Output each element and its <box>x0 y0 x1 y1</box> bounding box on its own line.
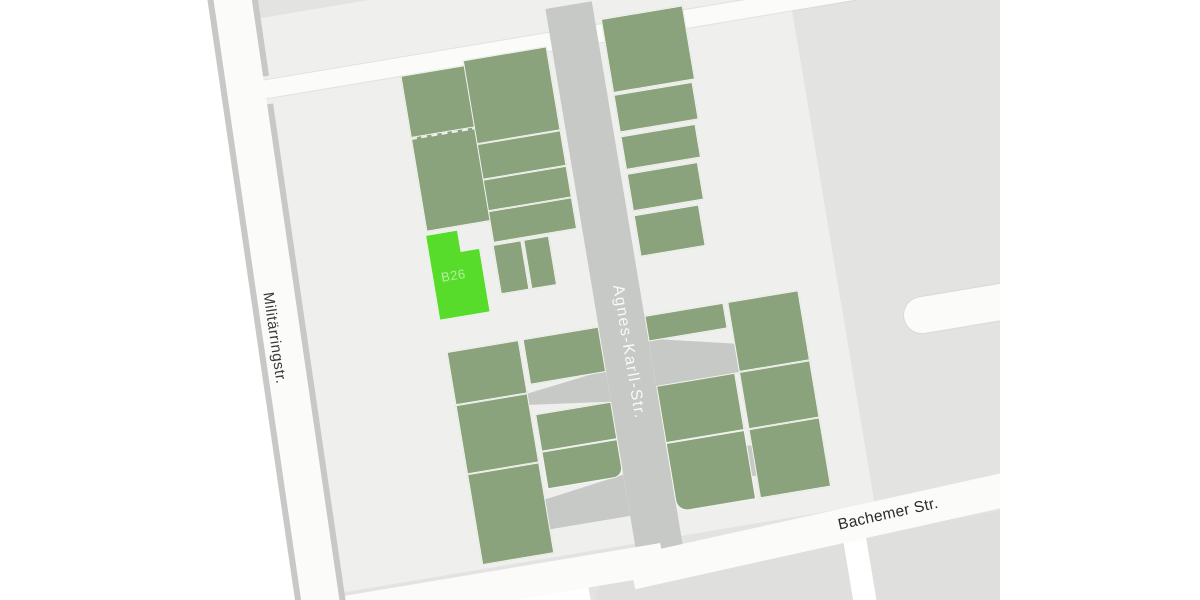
parcel-LLa3[interactable] <box>467 462 554 565</box>
highlighted-plot-label: B26 <box>440 266 467 285</box>
map-viewport: B26 Agnes-Karll-Str. Bachemer Str. Milit… <box>0 0 1200 600</box>
parcel-LLa2[interactable] <box>456 393 540 474</box>
parcel-B1[interactable] <box>463 46 561 144</box>
parcel-LRa3[interactable] <box>666 430 756 512</box>
parcel-LRb3[interactable] <box>749 417 832 498</box>
parcel-LRb1[interactable] <box>727 290 810 372</box>
parcel-R1[interactable] <box>601 5 695 93</box>
map-right-margin <box>1000 0 1200 600</box>
